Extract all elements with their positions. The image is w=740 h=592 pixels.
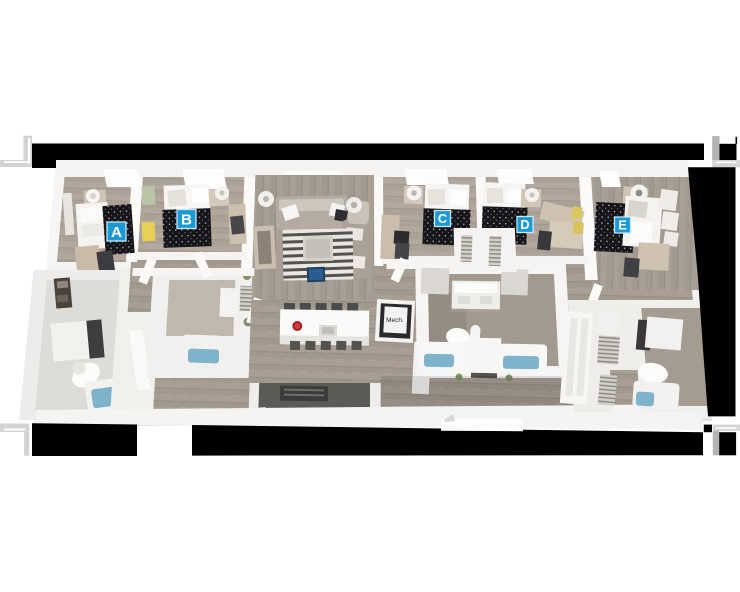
svg-text:B: B: [181, 211, 192, 228]
svg-text:D: D: [520, 217, 529, 232]
svg-text:A: A: [111, 224, 122, 241]
svg-text:C: C: [438, 211, 447, 226]
svg-text:E: E: [618, 218, 627, 233]
svg-text:Mech.: Mech.: [386, 317, 404, 324]
